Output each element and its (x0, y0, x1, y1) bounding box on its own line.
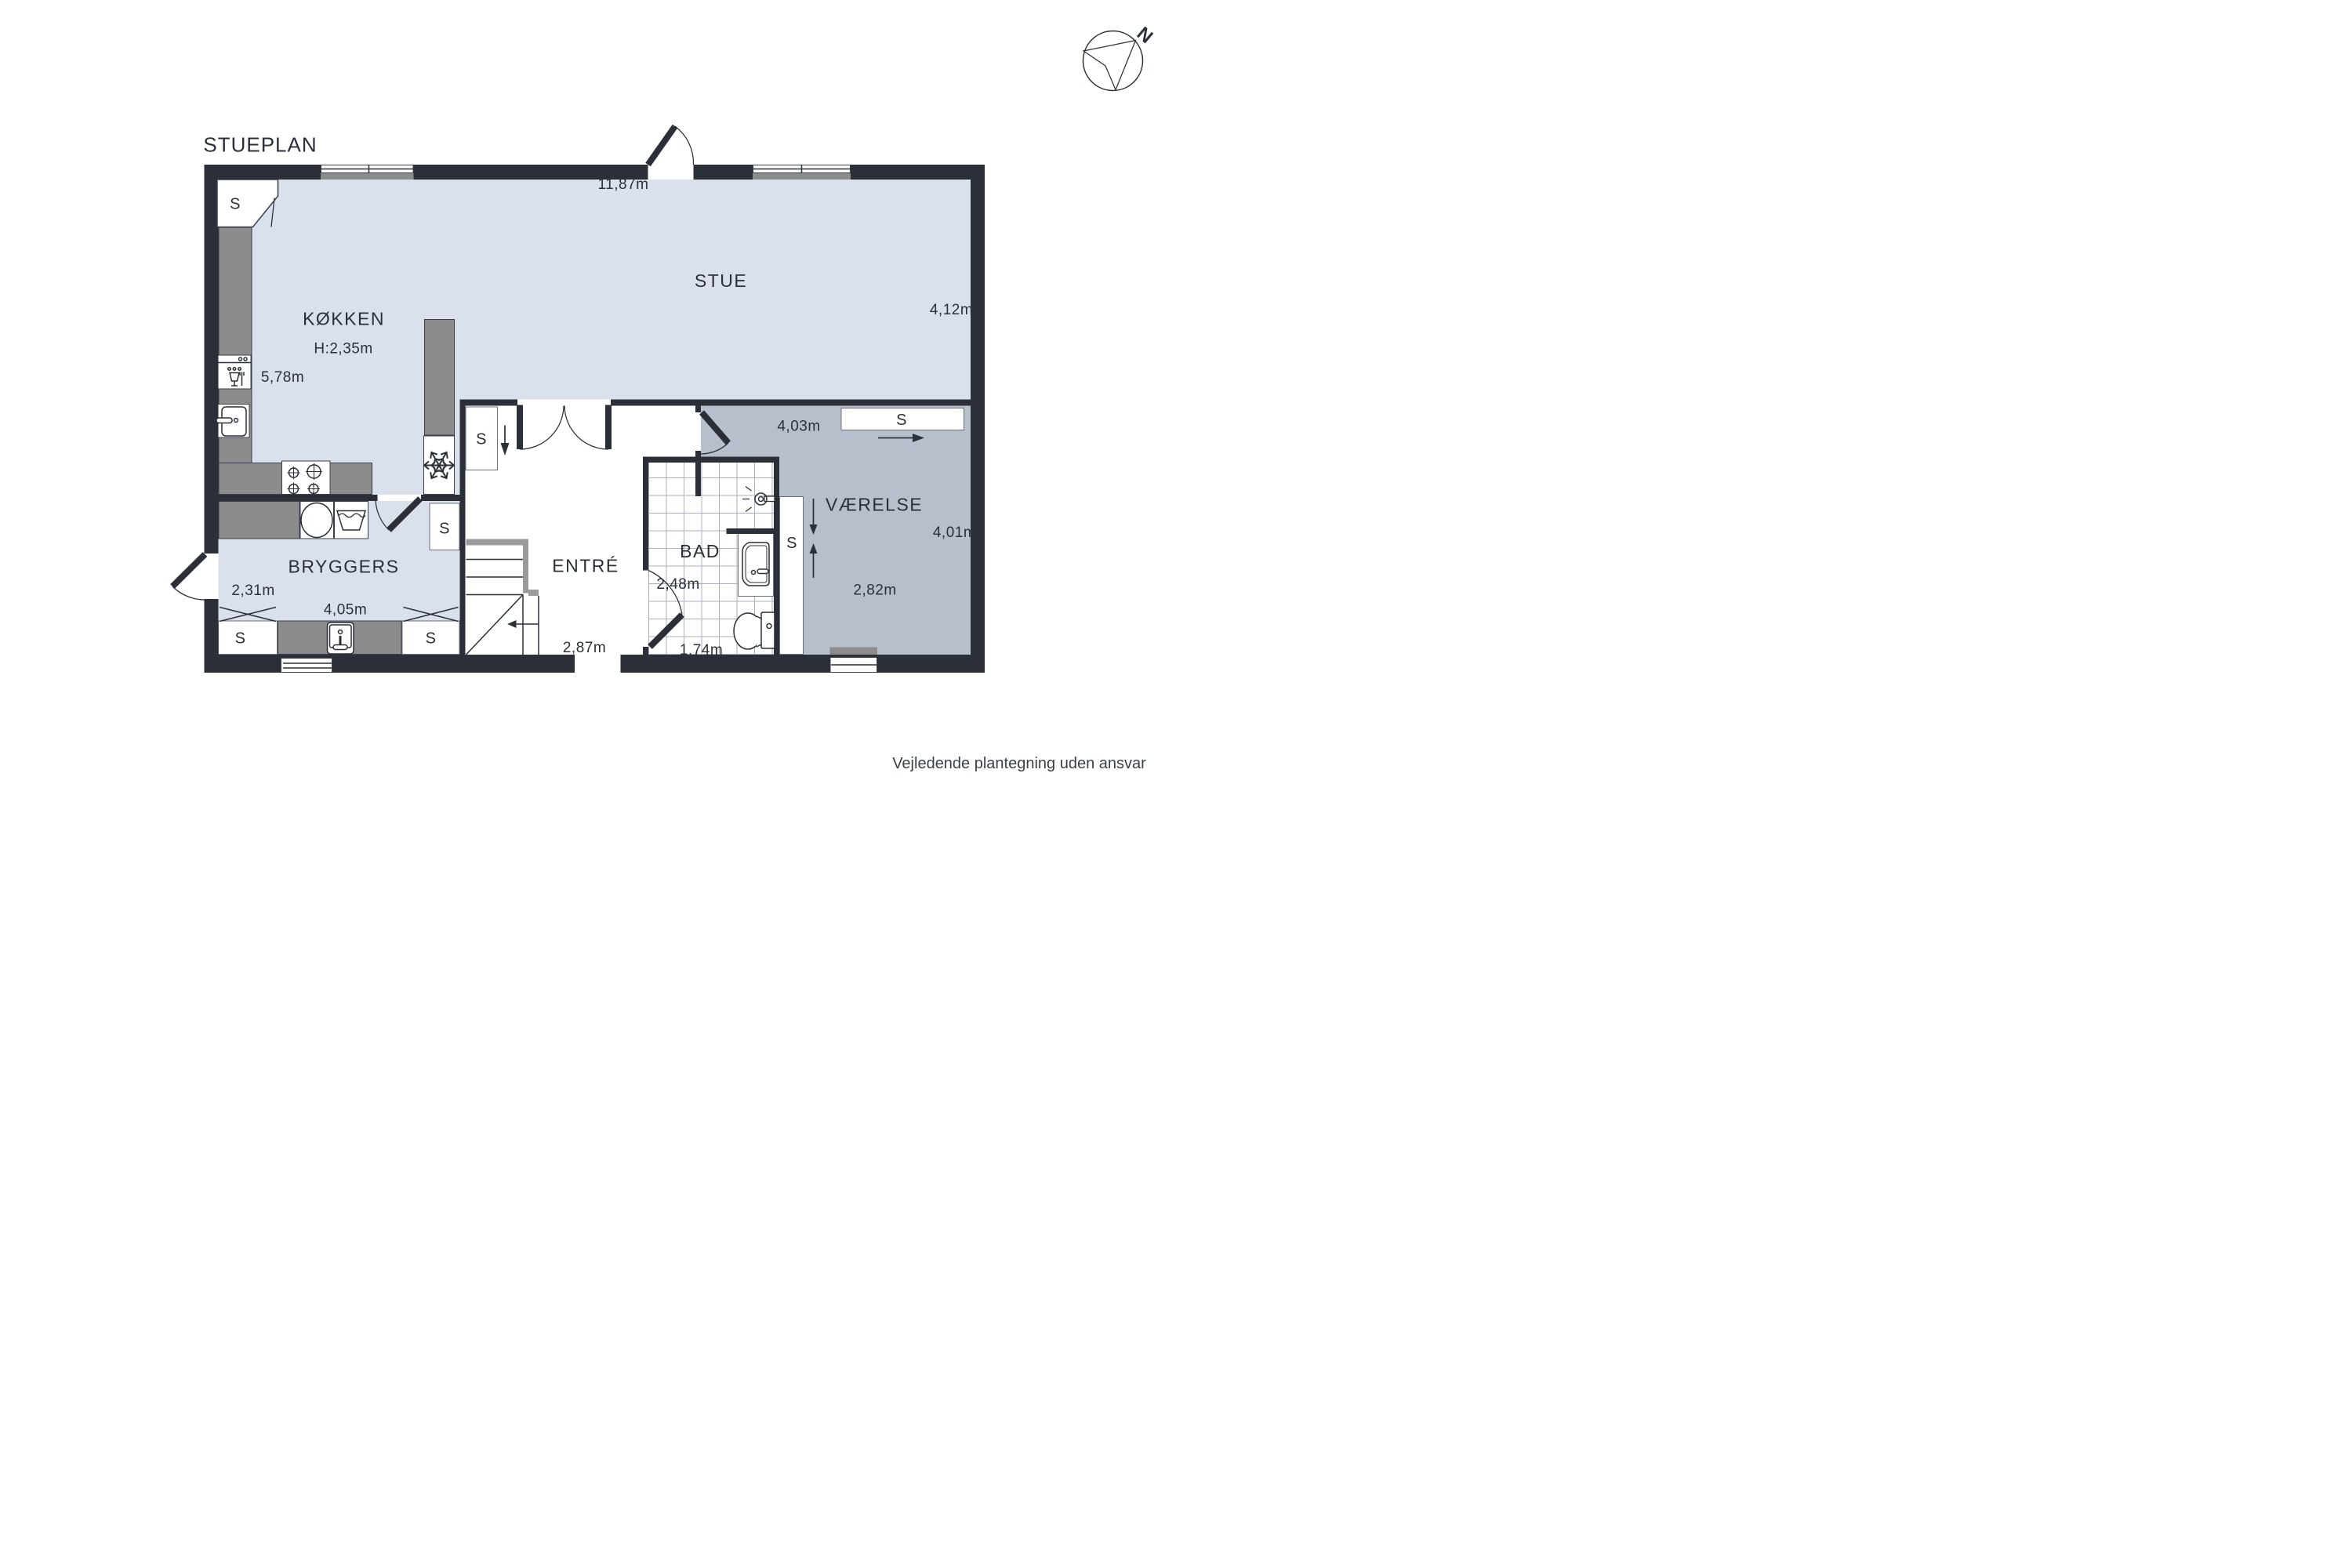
measure-stue-width: 11,87m (598, 176, 649, 193)
vaerelse-door (701, 412, 728, 454)
room-label-vaerelse: VÆRELSE (826, 494, 923, 515)
washing-machine-icon (301, 503, 332, 538)
measure-vaerelse-depth: 4,01m (933, 524, 976, 541)
double-door-stue-entre (520, 405, 608, 450)
closet-label-entre: S (476, 430, 487, 448)
floorplan-page: STUEPLAN STUE 11,87m 4,12m KØKKEN H:2,35… (0, 0, 1176, 784)
freezer-snowflake-icon (423, 450, 455, 481)
measure-bad-width: 1,74m (680, 641, 723, 659)
room-label-stue: STUE (695, 270, 747, 292)
terrace-door (648, 126, 694, 165)
page-title: STUEPLAN (203, 133, 317, 157)
room-label-kokken: KØKKEN (303, 308, 385, 329)
room-label-bryggers: BRYGGERS (289, 556, 400, 577)
stair-direction-arrow-icon (507, 620, 517, 628)
measure-bad-depth: 2,48m (656, 575, 699, 593)
laundry-tub-icon (337, 511, 365, 531)
bathroom-sink-icon (742, 543, 769, 586)
window-mullions (283, 165, 877, 668)
arrow-down-strip-icon (810, 499, 818, 535)
shower-icon (742, 487, 775, 512)
measure-bryggers-width: 4,05m (324, 601, 367, 619)
closet-label-bryggers: S (439, 520, 450, 538)
room-label-entre: ENTRÉ (552, 555, 619, 576)
closet-label-bryggers-bl: S (235, 630, 246, 648)
stove-burners-icon (288, 463, 323, 495)
closet-kokken-corner (217, 180, 278, 227)
measure-kokken-ceiling: H:2,35m (314, 340, 372, 358)
closet-label-kokken-corner: S (230, 195, 241, 213)
floorplan-canvas: STUEPLAN STUE 11,87m 4,12m KØKKEN H:2,35… (0, 0, 1176, 784)
measure-kokken-width: 5,78m (261, 368, 304, 386)
toilet-icon (734, 612, 775, 649)
arrow-up-strip-icon (810, 543, 818, 578)
staircase (466, 539, 539, 655)
kitchen-sink-icon (216, 407, 246, 436)
closet-label-bryggers-br: S (426, 630, 437, 648)
dishwasher-icon (218, 358, 251, 386)
kitchen-bryggers-door (376, 499, 420, 530)
bryggers-sink-icon (328, 622, 354, 654)
measure-vaerelse-bottom: 2,82m (853, 582, 896, 599)
back-door (172, 554, 205, 600)
arrow-right-icon (878, 434, 924, 442)
arrow-down-icon (501, 426, 510, 456)
measure-stue-depth: 4,12m (930, 301, 973, 318)
closet-label-vaerelse-strip: S (786, 534, 797, 552)
measure-vaerelse-top: 4,03m (777, 418, 820, 435)
plan-symbols (0, 0, 1176, 784)
room-label-bad: BAD (680, 541, 720, 562)
disclaimer-text: Vejledende plantegning uden ansvar (892, 754, 1146, 772)
measure-entre-width: 2,87m (563, 639, 606, 656)
closet-label-vaerelse-top: S (896, 411, 907, 429)
measure-bryggers-depth: 2,31m (231, 582, 274, 599)
